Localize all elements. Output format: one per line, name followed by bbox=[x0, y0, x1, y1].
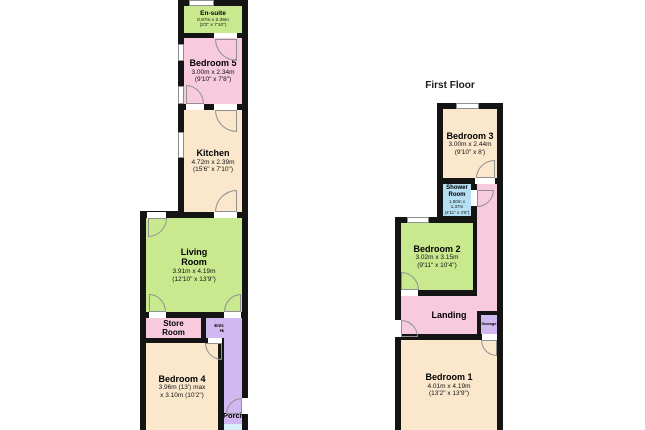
room-dim-metric: 3.96m (13') max bbox=[146, 384, 218, 392]
door-gap bbox=[242, 398, 248, 414]
room-dim-metric: 1.50m x 1.37m bbox=[443, 199, 471, 210]
room-name: Bedroom 2 bbox=[401, 244, 473, 255]
porch-entry-step bbox=[224, 424, 242, 430]
door-gap bbox=[149, 312, 166, 318]
window-icon bbox=[178, 86, 184, 104]
door-gap bbox=[186, 104, 204, 110]
room-name: Bedroom 1 bbox=[401, 372, 497, 383]
room-bedroom-4: Bedroom 4 3.96m (13') max x 3.10m (10'2"… bbox=[146, 343, 218, 430]
room-shower-room: Shower Room 1.50m x 1.37m (4'11" x 4'6") bbox=[443, 184, 471, 216]
room-dim-metric: 3.91m x 4.19m bbox=[146, 268, 242, 276]
room-name: Store Room bbox=[157, 319, 191, 338]
room-name: En-suite bbox=[184, 10, 242, 18]
room-store-room: Store Room bbox=[146, 318, 201, 338]
room-dim-imperial: (13'2" x 13'9") bbox=[401, 390, 497, 398]
floorplan-canvas: En-suite 0.97m x 2.39m (3'2" x 7'10") Be… bbox=[0, 0, 645, 430]
door-gap bbox=[475, 178, 495, 184]
room-dim-imperial: (12'10" x 13'9") bbox=[146, 276, 242, 284]
door-gap bbox=[401, 290, 418, 296]
door-gap bbox=[214, 212, 237, 218]
room-name: Shower Room bbox=[444, 185, 470, 199]
room-name: Storage bbox=[481, 322, 497, 327]
room-bedroom-1: Bedroom 1 4.01m x 4.19m (13'2" x 13'9") bbox=[401, 340, 497, 430]
room-dim-metric: 4.72m x 2.39m bbox=[184, 159, 242, 167]
window-icon bbox=[189, 0, 214, 6]
room-dim-imperial: (9'11" x 10'4") bbox=[401, 262, 473, 270]
room-name: Kitchen bbox=[184, 148, 242, 159]
room-dim-metric: 3.00m x 2.44m bbox=[443, 141, 497, 149]
door-gap bbox=[224, 312, 241, 318]
first-floor-title: First Floor bbox=[395, 80, 505, 91]
room-dim-metric: 4.01m x 4.19m bbox=[401, 383, 497, 391]
window-icon bbox=[456, 103, 479, 109]
room-dim-imperial: (15'6" x 7'10") bbox=[184, 166, 242, 174]
room-dim-imperial: (9'10" x 8') bbox=[443, 149, 497, 157]
room-dim-imperial: (4'11" x 4'6") bbox=[443, 210, 471, 215]
room-storage: Storage bbox=[481, 315, 497, 334]
room-dim-metric: 3.02m x 3.15m bbox=[401, 254, 473, 262]
room-name: Landing bbox=[411, 310, 487, 321]
room-dim-imperial: (9'10" x 7'8") bbox=[184, 76, 242, 84]
room-dim-imperial: (3'2" x 7'10") bbox=[184, 23, 242, 29]
room-dim-metric: 3.00m x 2.34m bbox=[184, 69, 242, 77]
room-name: Bedroom 4 bbox=[146, 374, 218, 385]
window-icon bbox=[178, 44, 184, 61]
room-dim-imperial: x 3.10m (10'2") bbox=[146, 392, 218, 400]
room-name: Living Room bbox=[171, 247, 217, 268]
window-icon bbox=[407, 217, 429, 223]
room-en-suite: En-suite 0.97m x 2.39m (3'2" x 7'10") bbox=[184, 6, 242, 33]
room-name: Bedroom 3 bbox=[443, 131, 497, 142]
window-icon bbox=[178, 132, 184, 158]
door-gap bbox=[214, 33, 237, 38]
